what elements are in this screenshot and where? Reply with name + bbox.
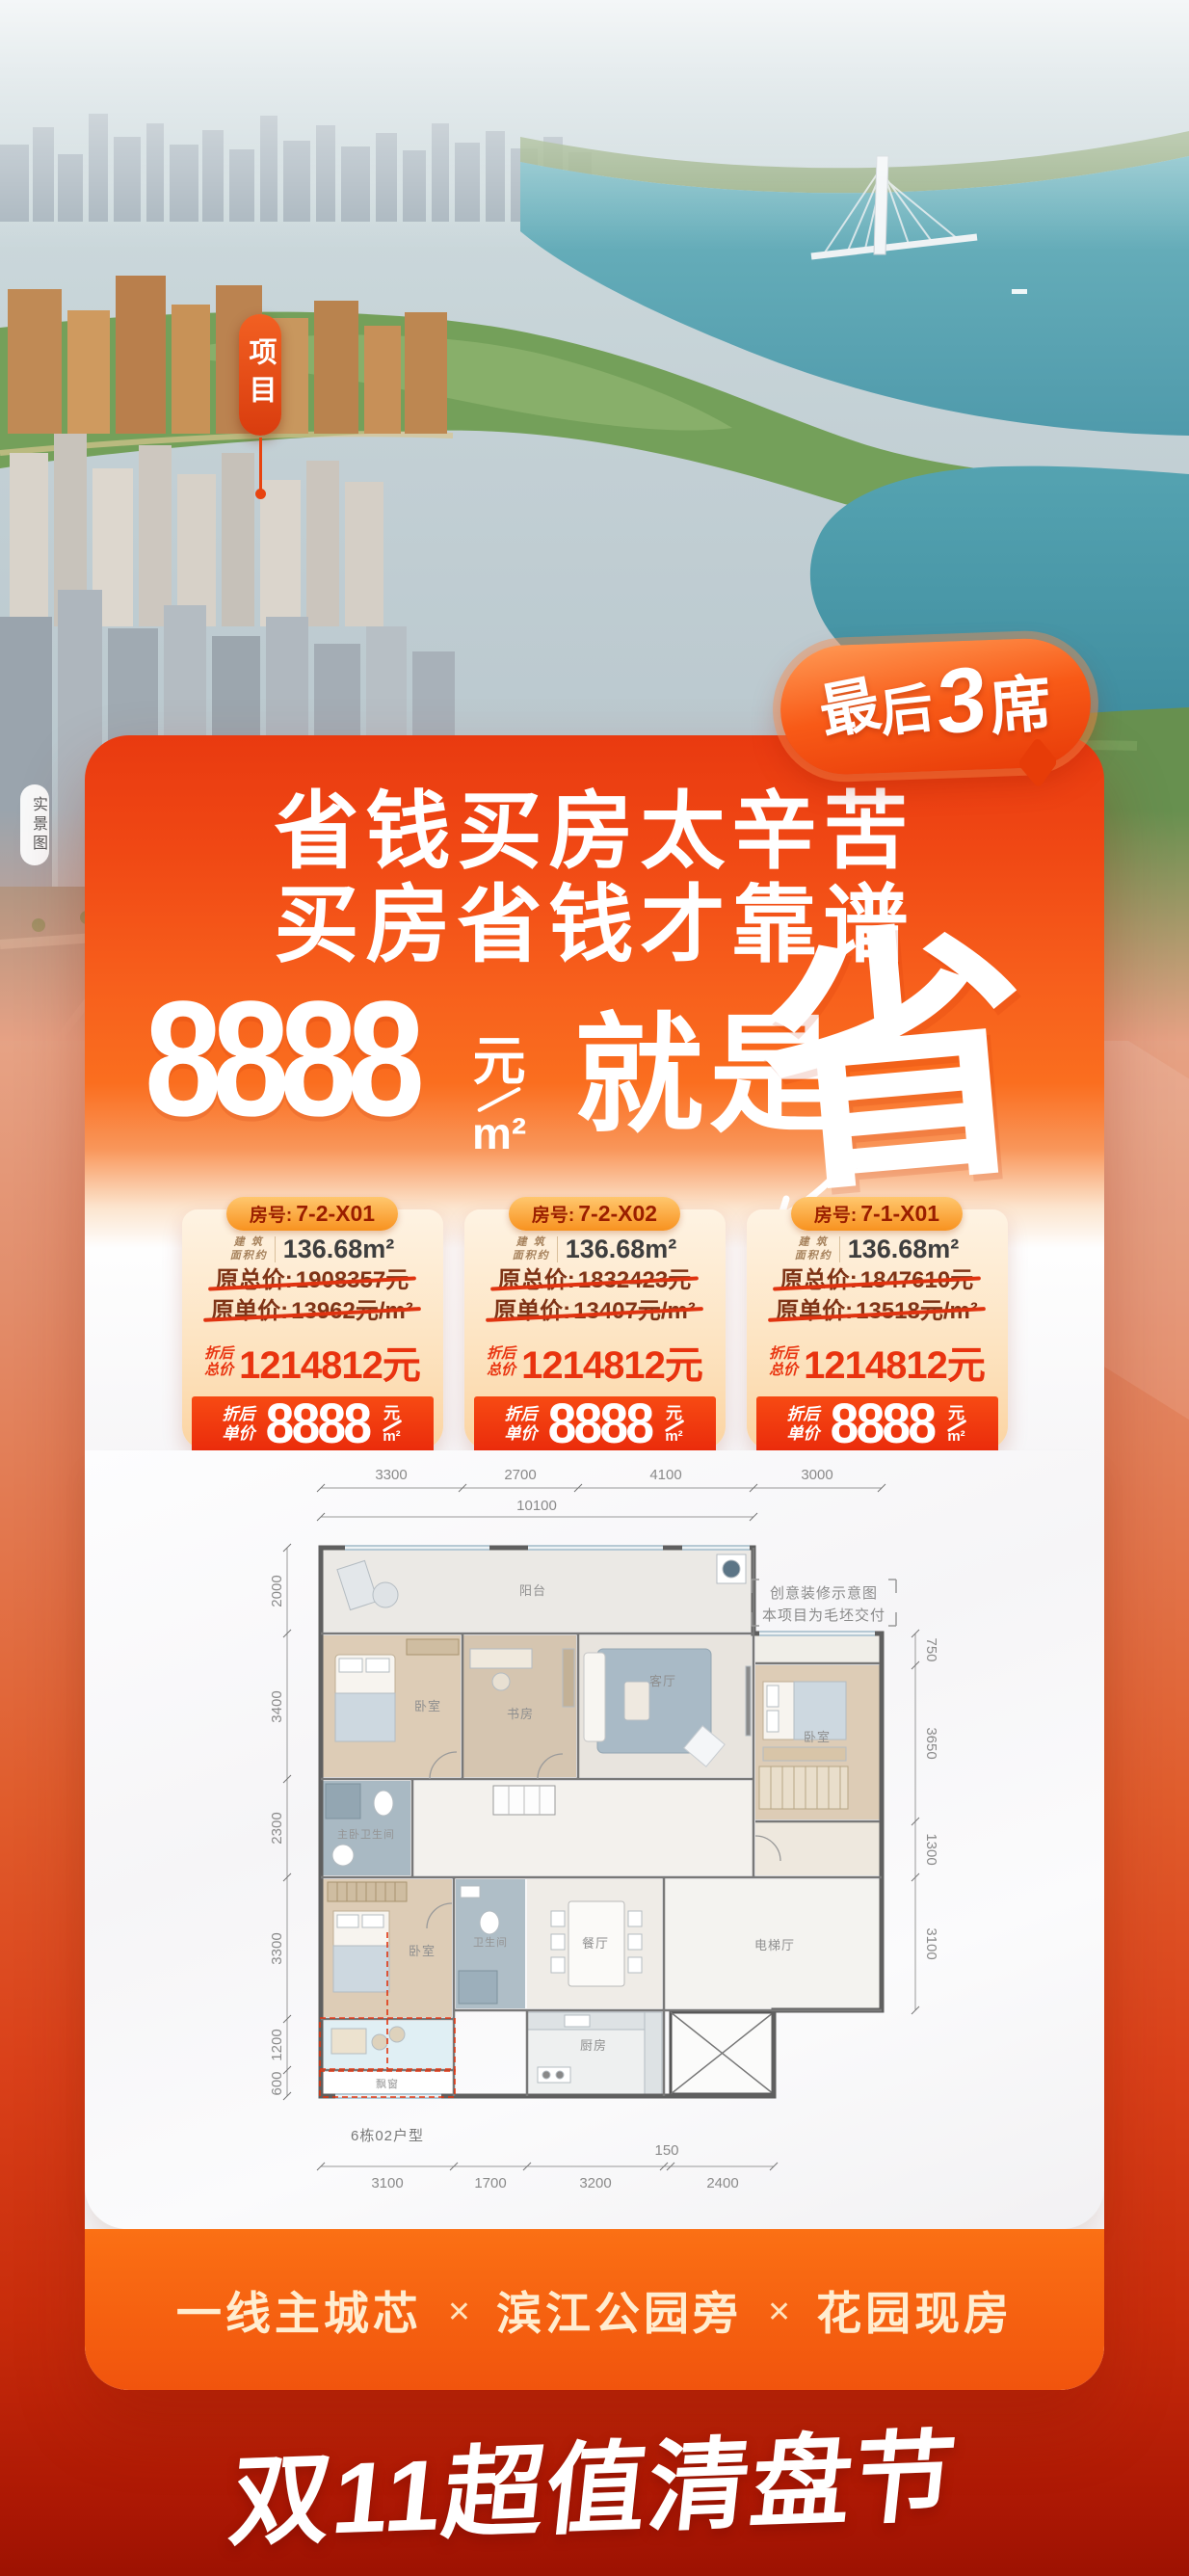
sellpoint: 滨江公园旁	[496, 2276, 742, 2343]
yuan-label: 元	[473, 1035, 526, 1088]
svg-text:1200: 1200	[269, 2029, 285, 2060]
badge-char: 3	[929, 652, 992, 750]
discount-unit-price: 折后单价 8888 元m²	[756, 1396, 998, 1452]
svg-text:厨房: 厨房	[580, 2038, 607, 2053]
discount-total-price: 折后总价 1214812元	[204, 1334, 420, 1390]
room-number-pill: 房号: 7-2-X02	[509, 1197, 680, 1231]
area-row: 建 筑面积约 136.68m²	[513, 1235, 677, 1264]
svg-text:3300: 3300	[375, 1467, 407, 1483]
unit-type-label: 6栋02户型	[351, 2127, 424, 2144]
svg-text:3100: 3100	[923, 1927, 939, 1959]
svg-text:4100: 4100	[649, 1467, 681, 1483]
svg-text:创意装修示意图: 创意装修示意图	[770, 1584, 878, 1602]
svg-text:3100: 3100	[371, 2175, 403, 2191]
project-location-tag: 项目	[239, 314, 281, 436]
original-unit-price: 原单价:13962元/m²	[211, 1297, 413, 1326]
area-value: 136.68m²	[848, 1235, 960, 1264]
original-unit-price: 原单价:13518元/m²	[776, 1297, 978, 1326]
svg-text:2000: 2000	[269, 1575, 285, 1607]
svg-text:本项目为毛坯交付: 本项目为毛坯交付	[762, 1607, 885, 1624]
svg-text:卧室: 卧室	[414, 1699, 441, 1713]
room-number-pill: 房号: 7-2-X01	[226, 1197, 398, 1231]
headline-line1: 省钱买房太辛苦	[85, 785, 1104, 879]
cross-separator-icon: ✕	[767, 2296, 791, 2329]
room-label: 房号:	[814, 1201, 857, 1227]
badge-char: 最	[815, 675, 885, 745]
svg-text:3300: 3300	[269, 1932, 285, 1964]
svg-text:600: 600	[269, 2071, 285, 2095]
main-offer-card: 省钱买房太辛苦 买房省钱才靠谱 8888 元 m² 就是 省 房号:	[85, 735, 1104, 2390]
svg-text:主卧卫生间: 主卧卫生间	[337, 1827, 395, 1841]
svg-text:卧室: 卧室	[804, 1730, 831, 1744]
svg-text:150: 150	[654, 2142, 678, 2159]
area-label: 建 筑	[230, 1236, 268, 1250]
banner-unit: 元 m²	[472, 1035, 526, 1155]
delivery-note: 创意装修示意图 本项目为毛坯交付	[752, 1580, 896, 1626]
svg-text:2700: 2700	[504, 1467, 536, 1483]
svg-text:阳台: 阳台	[519, 1583, 546, 1598]
discount-total-price: 折后总价 1214812元	[487, 1334, 702, 1390]
unit-card-7-2-X02: 房号: 7-2-X02 建 筑面积约 136.68m² 原总价:1832423元…	[464, 1209, 726, 1449]
svg-text:客厅: 客厅	[649, 1674, 676, 1688]
svg-text:书房: 书房	[507, 1707, 534, 1721]
cross-separator-icon: ✕	[447, 2296, 471, 2329]
original-total-price: 原总价:1832423元	[498, 1266, 691, 1295]
floorplan-panel: 3300 2700 4100 3000 10100 2000 3400 2300…	[85, 1450, 1104, 2229]
unit-card-7-1-X01: 房号: 7-1-X01 建 筑面积约 136.68m² 原总价:1847610元…	[747, 1209, 1008, 1449]
discount-unit-price: 折后单价 8888 元m²	[192, 1396, 434, 1452]
svg-text:飘窗: 飘窗	[376, 2077, 399, 2090]
original-total-price: 原总价:1908357元	[216, 1266, 409, 1295]
svg-text:10100: 10100	[516, 1498, 557, 1514]
unit-card-7-2-X01: 房号: 7-2-X01 建 筑面积约 136.68m² 原总价:1908357元…	[182, 1209, 443, 1449]
boat	[1012, 289, 1027, 294]
sellpoint: 一线主城芯	[176, 2276, 422, 2343]
svg-text:餐厅: 餐厅	[582, 1936, 609, 1951]
badge-char: 后	[878, 681, 936, 739]
area-value: 136.68m²	[283, 1235, 395, 1264]
original-total-price: 原总价:1847610元	[780, 1266, 973, 1295]
area-row: 建 筑面积约 136.68m²	[230, 1235, 395, 1264]
svg-text:卧室: 卧室	[409, 1944, 436, 1958]
room-label: 房号:	[532, 1201, 574, 1227]
svg-text:卫生间: 卫生间	[473, 1935, 508, 1949]
svg-text:2300: 2300	[269, 1812, 285, 1844]
svg-text:1700: 1700	[474, 2175, 506, 2191]
sellpoint: 花园现房	[816, 2276, 1013, 2343]
svg-text:750: 750	[923, 1637, 939, 1661]
area-value: 136.68m²	[566, 1235, 677, 1264]
svg-text:3650: 3650	[923, 1727, 939, 1759]
svg-text:2400: 2400	[706, 2175, 738, 2191]
room-number: 7-1-X01	[860, 1201, 939, 1227]
real-scene-watermark: 实景图	[20, 784, 49, 865]
svg-text:电梯厅: 电梯厅	[754, 1938, 795, 1952]
room-number: 7-2-X02	[578, 1201, 657, 1227]
room-label: 房号:	[250, 1201, 292, 1227]
floorplan-drawing: 3300 2700 4100 3000 10100 2000 3400 2300…	[85, 1450, 1104, 2229]
original-unit-price: 原单价:13407元/m²	[493, 1297, 696, 1326]
area-row: 建 筑面积约 136.68m²	[795, 1235, 960, 1264]
project-pin	[259, 438, 262, 490]
unit-cards-row: 房号: 7-2-X01 建 筑面积约 136.68m² 原总价:1908357元…	[85, 1209, 1104, 1449]
discount-unit-price: 折后单价 8888 元m²	[474, 1396, 716, 1452]
discount-total-price: 折后总价 1214812元	[769, 1334, 985, 1390]
elevator-shaft	[671, 2012, 774, 2094]
sellpoints-band: 一线主城芯 ✕ 滨江公园旁 ✕ 花园现房	[85, 2229, 1104, 2390]
svg-text:1300: 1300	[923, 1833, 939, 1865]
event-title: 双11超值清盘节	[0, 2387, 1189, 2574]
badge-char: 席	[987, 672, 1053, 738]
svg-text:3200: 3200	[579, 2175, 611, 2191]
room-number: 7-2-X01	[296, 1201, 375, 1227]
last-3-units-badge: 最 后 3 席	[779, 636, 1093, 776]
poster: 项目 实景图 最 后 3 席 省钱买房太辛苦 买房省钱才靠谱 8888 元 m²…	[0, 0, 1189, 2576]
svg-text:3400: 3400	[269, 1690, 285, 1722]
sqm-label: m²	[472, 1111, 526, 1155]
banner-price: 8888	[145, 977, 415, 1141]
room-number-pill: 房号: 7-1-X01	[791, 1197, 963, 1231]
svg-text:3000: 3000	[801, 1467, 832, 1483]
